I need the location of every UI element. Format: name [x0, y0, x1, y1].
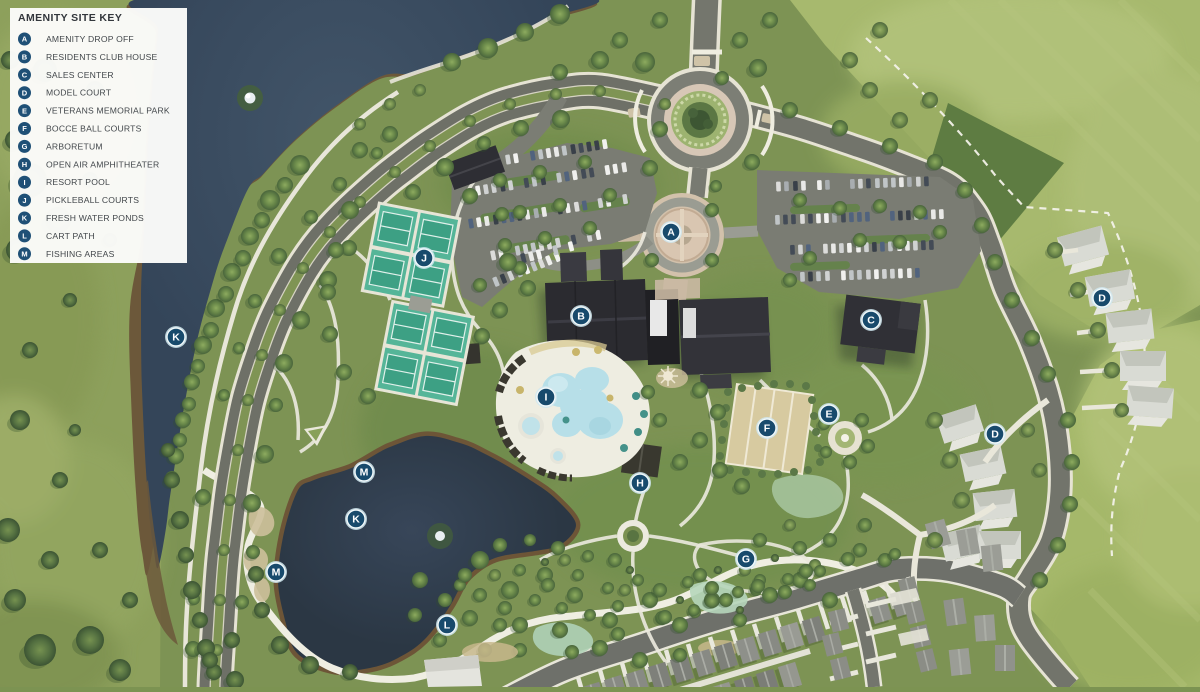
svg-text:F: F [764, 423, 771, 435]
svg-text:M: M [272, 567, 281, 579]
svg-text:AMENITY DROP OFF: AMENITY DROP OFF [46, 34, 134, 44]
svg-text:M: M [360, 467, 369, 479]
svg-text:L: L [22, 232, 27, 241]
svg-text:L: L [444, 620, 451, 632]
svg-text:B: B [22, 53, 28, 62]
svg-text:D: D [1098, 293, 1106, 305]
svg-text:H: H [22, 160, 27, 169]
svg-text:A: A [22, 35, 28, 44]
svg-text:K: K [22, 214, 28, 223]
svg-text:G: G [742, 554, 750, 566]
svg-text:C: C [22, 71, 28, 80]
svg-text:A: A [667, 227, 675, 239]
svg-text:J: J [421, 253, 427, 265]
svg-text:D: D [991, 429, 999, 441]
svg-text:G: G [22, 142, 28, 151]
svg-text:K: K [172, 332, 180, 344]
svg-text:J: J [22, 196, 26, 205]
svg-text:RESIDENTS CLUB HOUSE: RESIDENTS CLUB HOUSE [46, 52, 158, 62]
svg-text:SALES CENTER: SALES CENTER [46, 70, 114, 80]
svg-text:D: D [22, 88, 28, 97]
svg-text:I: I [23, 178, 25, 187]
svg-text:MODEL COURT: MODEL COURT [46, 88, 112, 98]
svg-text:K: K [352, 514, 360, 526]
svg-text:FRESH WATER PONDS: FRESH WATER PONDS [46, 213, 144, 223]
svg-text:VETERANS MEMORIAL PARK: VETERANS MEMORIAL PARK [46, 106, 170, 116]
svg-text:H: H [636, 478, 644, 490]
svg-text:BOCCE BALL COURTS: BOCCE BALL COURTS [46, 124, 142, 134]
svg-text:E: E [825, 409, 832, 421]
svg-text:M: M [21, 250, 27, 259]
svg-text:OPEN AIR AMPHITHEATER: OPEN AIR AMPHITHEATER [46, 159, 159, 169]
svg-text:RESORT POOL: RESORT POOL [46, 177, 110, 187]
svg-text:PICKLEBALL COURTS: PICKLEBALL COURTS [46, 195, 139, 205]
svg-text:AMENITY SITE KEY: AMENITY SITE KEY [18, 12, 122, 24]
svg-text:CART PATH: CART PATH [46, 231, 95, 241]
svg-text:E: E [22, 106, 27, 115]
svg-text:F: F [22, 124, 27, 133]
svg-text:FISHING AREAS: FISHING AREAS [46, 249, 115, 259]
svg-text:I: I [545, 392, 548, 404]
svg-text:C: C [867, 315, 875, 327]
svg-text:B: B [577, 311, 585, 323]
svg-text:ARBORETUM: ARBORETUM [46, 141, 103, 151]
